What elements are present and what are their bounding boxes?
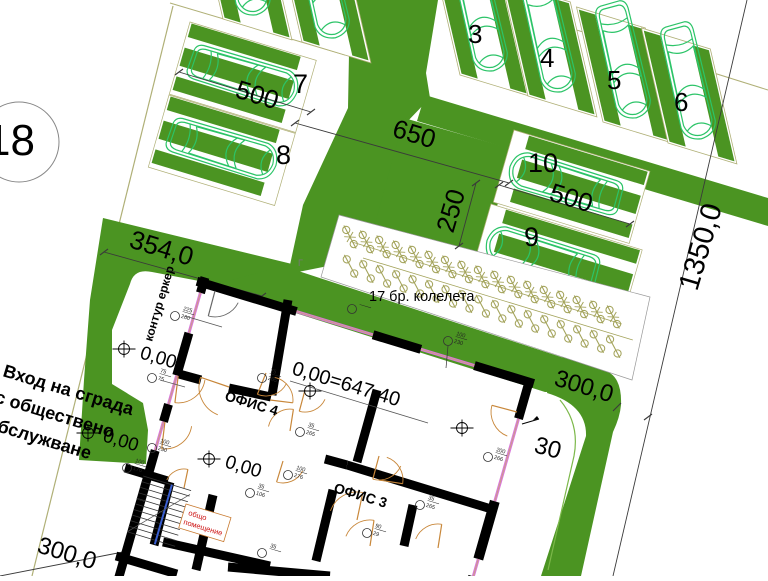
svg-text:Г: Г	[298, 258, 303, 268]
svg-text:7: 7	[293, 69, 308, 99]
svg-text:18: 18	[0, 116, 35, 165]
svg-text:9: 9	[524, 222, 539, 252]
svg-text:17 бр. колелета: 17 бр. колелета	[369, 289, 475, 305]
svg-text:5: 5	[607, 65, 621, 95]
svg-text:4: 4	[540, 43, 554, 73]
svg-text:6: 6	[674, 87, 688, 117]
svg-text:3: 3	[468, 19, 482, 49]
svg-text:10: 10	[528, 148, 558, 178]
svg-text:8: 8	[276, 140, 291, 170]
